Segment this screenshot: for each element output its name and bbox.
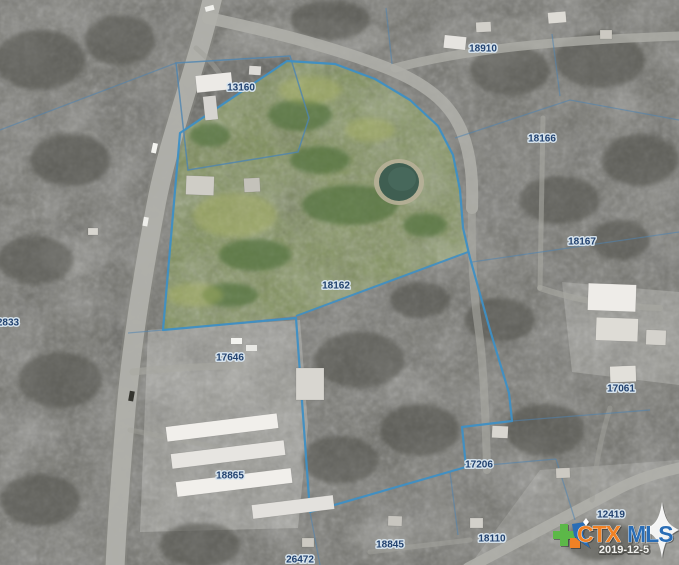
building (203, 95, 218, 120)
parcel-label-18910: 18910 (469, 44, 497, 55)
parcel-label-17206: 17206 (465, 460, 493, 471)
building (646, 330, 667, 346)
building (302, 538, 314, 547)
parcel-label-13160: 13160 (227, 83, 255, 94)
map-canvas: 1316018910181661816718162283317646170611… (0, 0, 679, 565)
parcel-label-17061: 17061 (607, 384, 635, 395)
parcel-label-2833: 2833 (0, 318, 20, 329)
aerial-map: 1316018910181661816718162283317646170611… (0, 0, 679, 565)
building (548, 11, 567, 24)
building (249, 66, 262, 76)
building (470, 518, 483, 528)
building (610, 366, 637, 383)
building (244, 178, 261, 193)
parcel-label-18110: 18110 (478, 534, 506, 545)
parcel-label-17646: 17646 (216, 353, 244, 364)
building (556, 468, 570, 478)
parcel-label-18162: 18162 (322, 281, 350, 292)
building (388, 516, 402, 526)
building (186, 176, 215, 196)
building (443, 35, 466, 50)
vehicle (246, 345, 257, 351)
building (296, 368, 324, 400)
building (492, 426, 509, 439)
parcel-label-18865: 18865 (216, 471, 244, 482)
building (476, 22, 492, 33)
building (596, 317, 639, 341)
building (600, 30, 612, 39)
building (588, 283, 637, 312)
parcel-label-26472: 26472 (286, 555, 314, 565)
parcel-label-12419: 12419 (597, 510, 625, 521)
parcel-label-18166: 18166 (528, 134, 556, 145)
watermark-date: 2019-12-5 (599, 544, 649, 556)
building (88, 228, 98, 235)
vehicle (231, 338, 242, 344)
parcel-label-18167: 18167 (568, 237, 596, 248)
parcel-label-18845: 18845 (376, 540, 404, 551)
pond (374, 159, 424, 205)
